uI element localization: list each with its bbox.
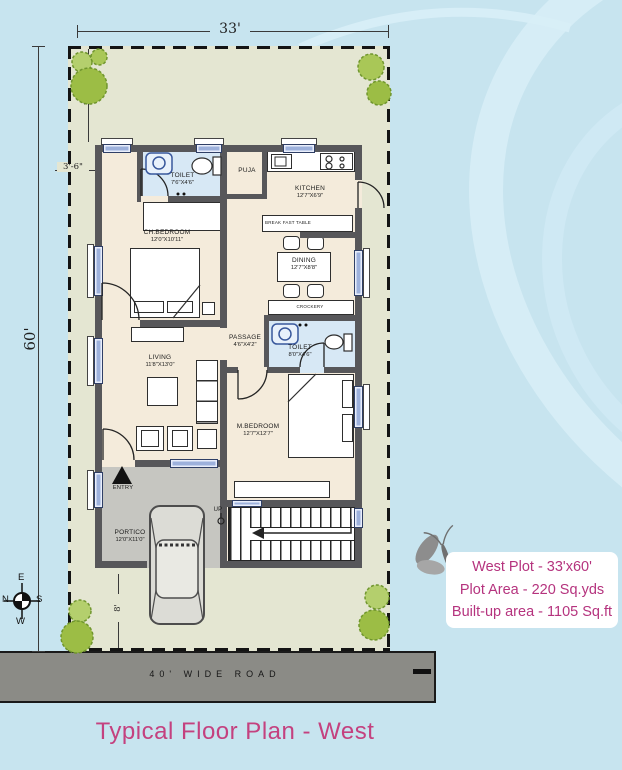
door-gap: [238, 367, 267, 373]
door-gap: [141, 196, 168, 202]
room-label-dining: DINING12'7"X8'8": [279, 257, 329, 272]
compass-top-label: E: [18, 572, 24, 583]
wall-segment: [95, 145, 362, 152]
side-stool: [197, 429, 217, 449]
door-gap: [102, 460, 135, 467]
compass-right-label: S: [36, 594, 42, 605]
compass-rose-icon: [4, 583, 40, 619]
pillow: [134, 301, 164, 313]
label-up: UP: [210, 507, 226, 514]
window-sill: [87, 244, 94, 298]
floor-plan-page: 40' WIDE ROAD 33' 60' 10'-3" 3'-6" 8': [0, 0, 622, 770]
dining-chair: [307, 236, 324, 250]
room-label-toilet2: TOILET8'0"X4'6": [274, 344, 326, 359]
pillow: [167, 301, 193, 313]
plot-boundary-right: [387, 46, 390, 651]
room-label-toilet1: TOILET7'6"X4'6": [155, 172, 210, 187]
room-label-m-bedroom: M.BEDROOM12'7"X12'7": [226, 423, 290, 438]
window: [283, 144, 315, 153]
dining-chair: [283, 236, 300, 250]
road-end-marker: [413, 669, 431, 674]
window: [354, 508, 363, 528]
door-gap: [102, 320, 140, 327]
dimension-tick: [32, 46, 45, 47]
plot-height-dimension: 60': [21, 321, 39, 357]
rear-setback-dimension: 8': [113, 594, 123, 622]
compass-bottom-label: W: [16, 616, 25, 627]
info-line-plot: West Plot - 33'x60': [446, 556, 618, 578]
window: [103, 144, 131, 153]
window: [94, 246, 103, 296]
window: [354, 386, 363, 428]
door-gap: [355, 180, 362, 208]
sofa: [131, 327, 184, 342]
wall-segment: [300, 232, 356, 238]
wall-segment: [95, 561, 362, 568]
dimension-tick: [388, 25, 389, 38]
door-gap: [300, 367, 324, 373]
window-sill: [363, 248, 370, 298]
shelf-unit: [196, 360, 218, 424]
sofa-chair-seat: [141, 430, 159, 447]
road-label: 40' WIDE ROAD: [30, 669, 400, 679]
info-line-builtup: Built-up area - 1105 Sq.ft: [446, 601, 618, 623]
window: [196, 144, 222, 153]
label-entry: ENTRY: [106, 485, 140, 492]
compass-left-label: N: [2, 594, 9, 605]
side-setback-dimension: 3'-6": [57, 162, 89, 172]
room-label-ch-bedroom: CH.BEDROOM12'0"X10'11": [122, 229, 212, 244]
front-setback-dimension: 10'-3": [83, 71, 93, 115]
room-label-kitchen: KITCHEN12'7"X6'9": [275, 185, 345, 200]
wardrobe: [234, 481, 330, 498]
window: [232, 500, 262, 507]
plot-info-box: West Plot - 33'x60' Plot Area - 220 Sq.y…: [446, 552, 618, 628]
staircase-landing: [250, 527, 354, 541]
portico-floor: [102, 467, 220, 561]
dining-chair: [307, 284, 324, 298]
dimension-line: [78, 31, 210, 32]
road: 40' WIDE ROAD: [0, 651, 436, 703]
wall-segment: [137, 150, 143, 196]
dimension-tick: [32, 651, 45, 652]
room-label-passage: PASSAGE4'6"X4'2": [222, 334, 268, 349]
page-title: Typical Floor Plan - West: [15, 718, 455, 746]
window-sill: [87, 336, 94, 386]
window: [94, 472, 103, 508]
dimension-line: [250, 31, 388, 32]
window-sill: [363, 384, 370, 430]
info-line-area: Plot Area - 220 Sq.yds: [446, 579, 618, 601]
stove: [320, 153, 353, 170]
wall-segment: [264, 315, 356, 321]
dimension-tick: [77, 25, 78, 38]
label-breakfast-table: BREAK FAST TABLE: [265, 220, 325, 225]
wardrobe: [143, 202, 226, 231]
kitchen-sink: [271, 154, 292, 169]
plot-boundary-bottom: [68, 648, 390, 651]
window: [170, 459, 218, 468]
plot-boundary-left: [68, 46, 71, 651]
car-entrance-gap: [147, 561, 220, 568]
center-table: [147, 377, 178, 406]
sofa-chair-seat: [172, 430, 188, 447]
label-crockery: CROCKERY: [280, 304, 340, 309]
window-sill: [87, 470, 94, 510]
bedside-table: [202, 302, 215, 315]
dining-chair: [283, 284, 300, 298]
room-label-living: LIVING11'8"X13'0": [128, 354, 192, 369]
pillow: [342, 414, 353, 442]
wall-segment: [227, 194, 267, 199]
room-label-puja: PUJA: [230, 167, 264, 175]
window: [94, 338, 103, 384]
window: [354, 250, 363, 296]
pillow: [342, 380, 353, 408]
plot-boundary-top: [68, 46, 390, 49]
room-label-portico: PORTICO12'0"X11'0": [100, 529, 160, 544]
plot-width-dimension: 33': [210, 21, 250, 37]
